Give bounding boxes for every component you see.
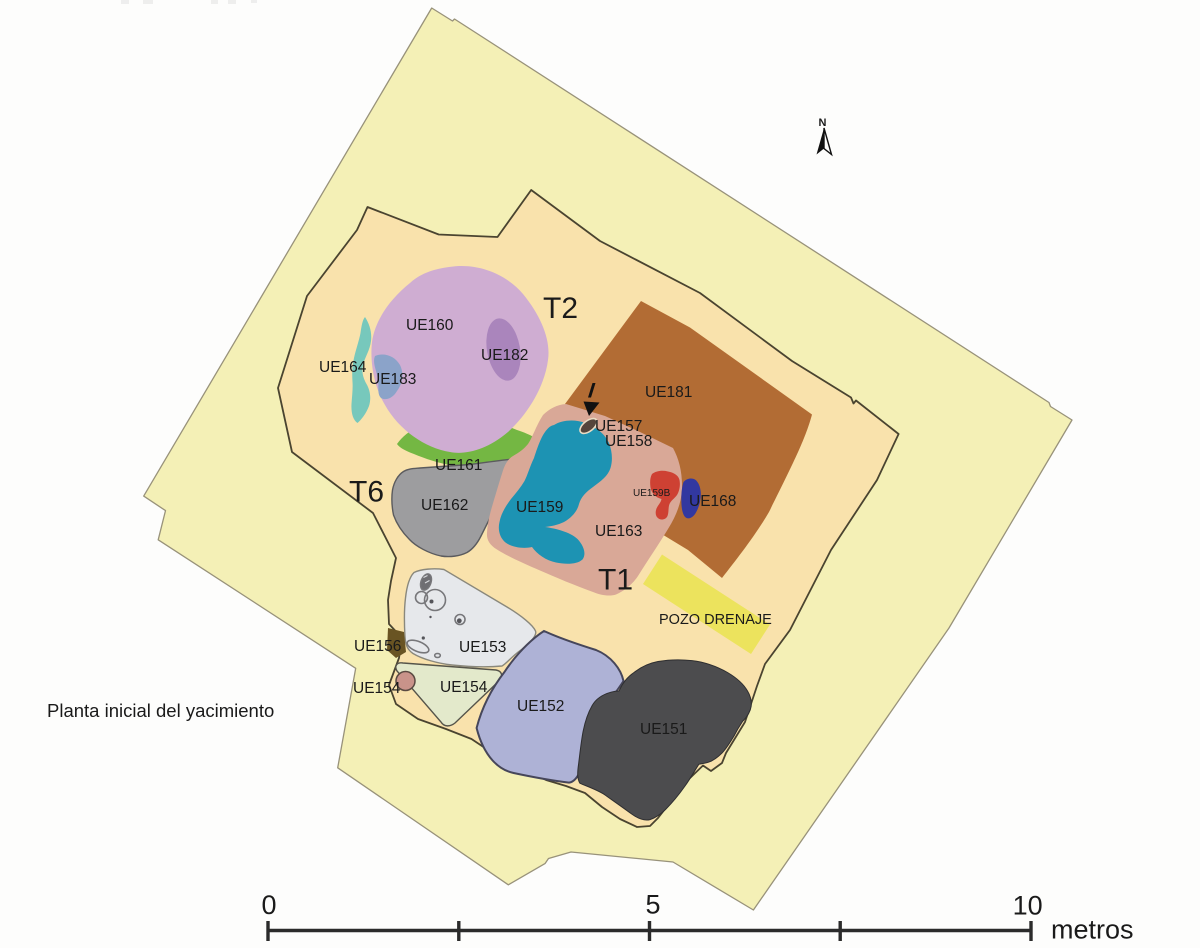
svg-text:UE159: UE159 <box>516 499 563 516</box>
svg-text:T6: T6 <box>349 476 384 509</box>
svg-text:UE154: UE154 <box>440 679 488 696</box>
svg-text:UE154: UE154 <box>353 680 401 697</box>
svg-text:UE182: UE182 <box>481 347 528 364</box>
svg-text:POZO DRENAJE: POZO DRENAJE <box>659 612 772 628</box>
svg-text:metros: metros <box>1051 915 1134 945</box>
svg-text:UE160: UE160 <box>406 317 454 334</box>
svg-text:UE161: UE161 <box>435 457 482 474</box>
svg-text:T2: T2 <box>543 292 578 325</box>
svg-text:UE158: UE158 <box>605 433 652 450</box>
svg-text:UE159B: UE159B <box>633 488 671 499</box>
svg-text:UE152: UE152 <box>517 698 564 715</box>
svg-text:UE153: UE153 <box>459 639 506 656</box>
svg-text:N: N <box>819 117 827 129</box>
svg-text:0: 0 <box>261 890 276 920</box>
svg-text:Planta inicial del yacimiento: Planta inicial del yacimiento <box>47 700 274 721</box>
svg-text:UE168: UE168 <box>689 493 736 510</box>
svg-text:UE181: UE181 <box>645 384 692 401</box>
svg-text:10: 10 <box>1013 891 1043 921</box>
svg-text:UE151: UE151 <box>640 721 687 738</box>
svg-text:5: 5 <box>645 890 660 920</box>
svg-text:UE163: UE163 <box>595 523 642 540</box>
svg-text:UE162: UE162 <box>421 497 468 514</box>
svg-text:UE164: UE164 <box>319 359 367 376</box>
svg-text:T1: T1 <box>598 564 633 597</box>
svg-text:UE183: UE183 <box>369 371 416 388</box>
svg-text:UE156: UE156 <box>354 638 401 655</box>
